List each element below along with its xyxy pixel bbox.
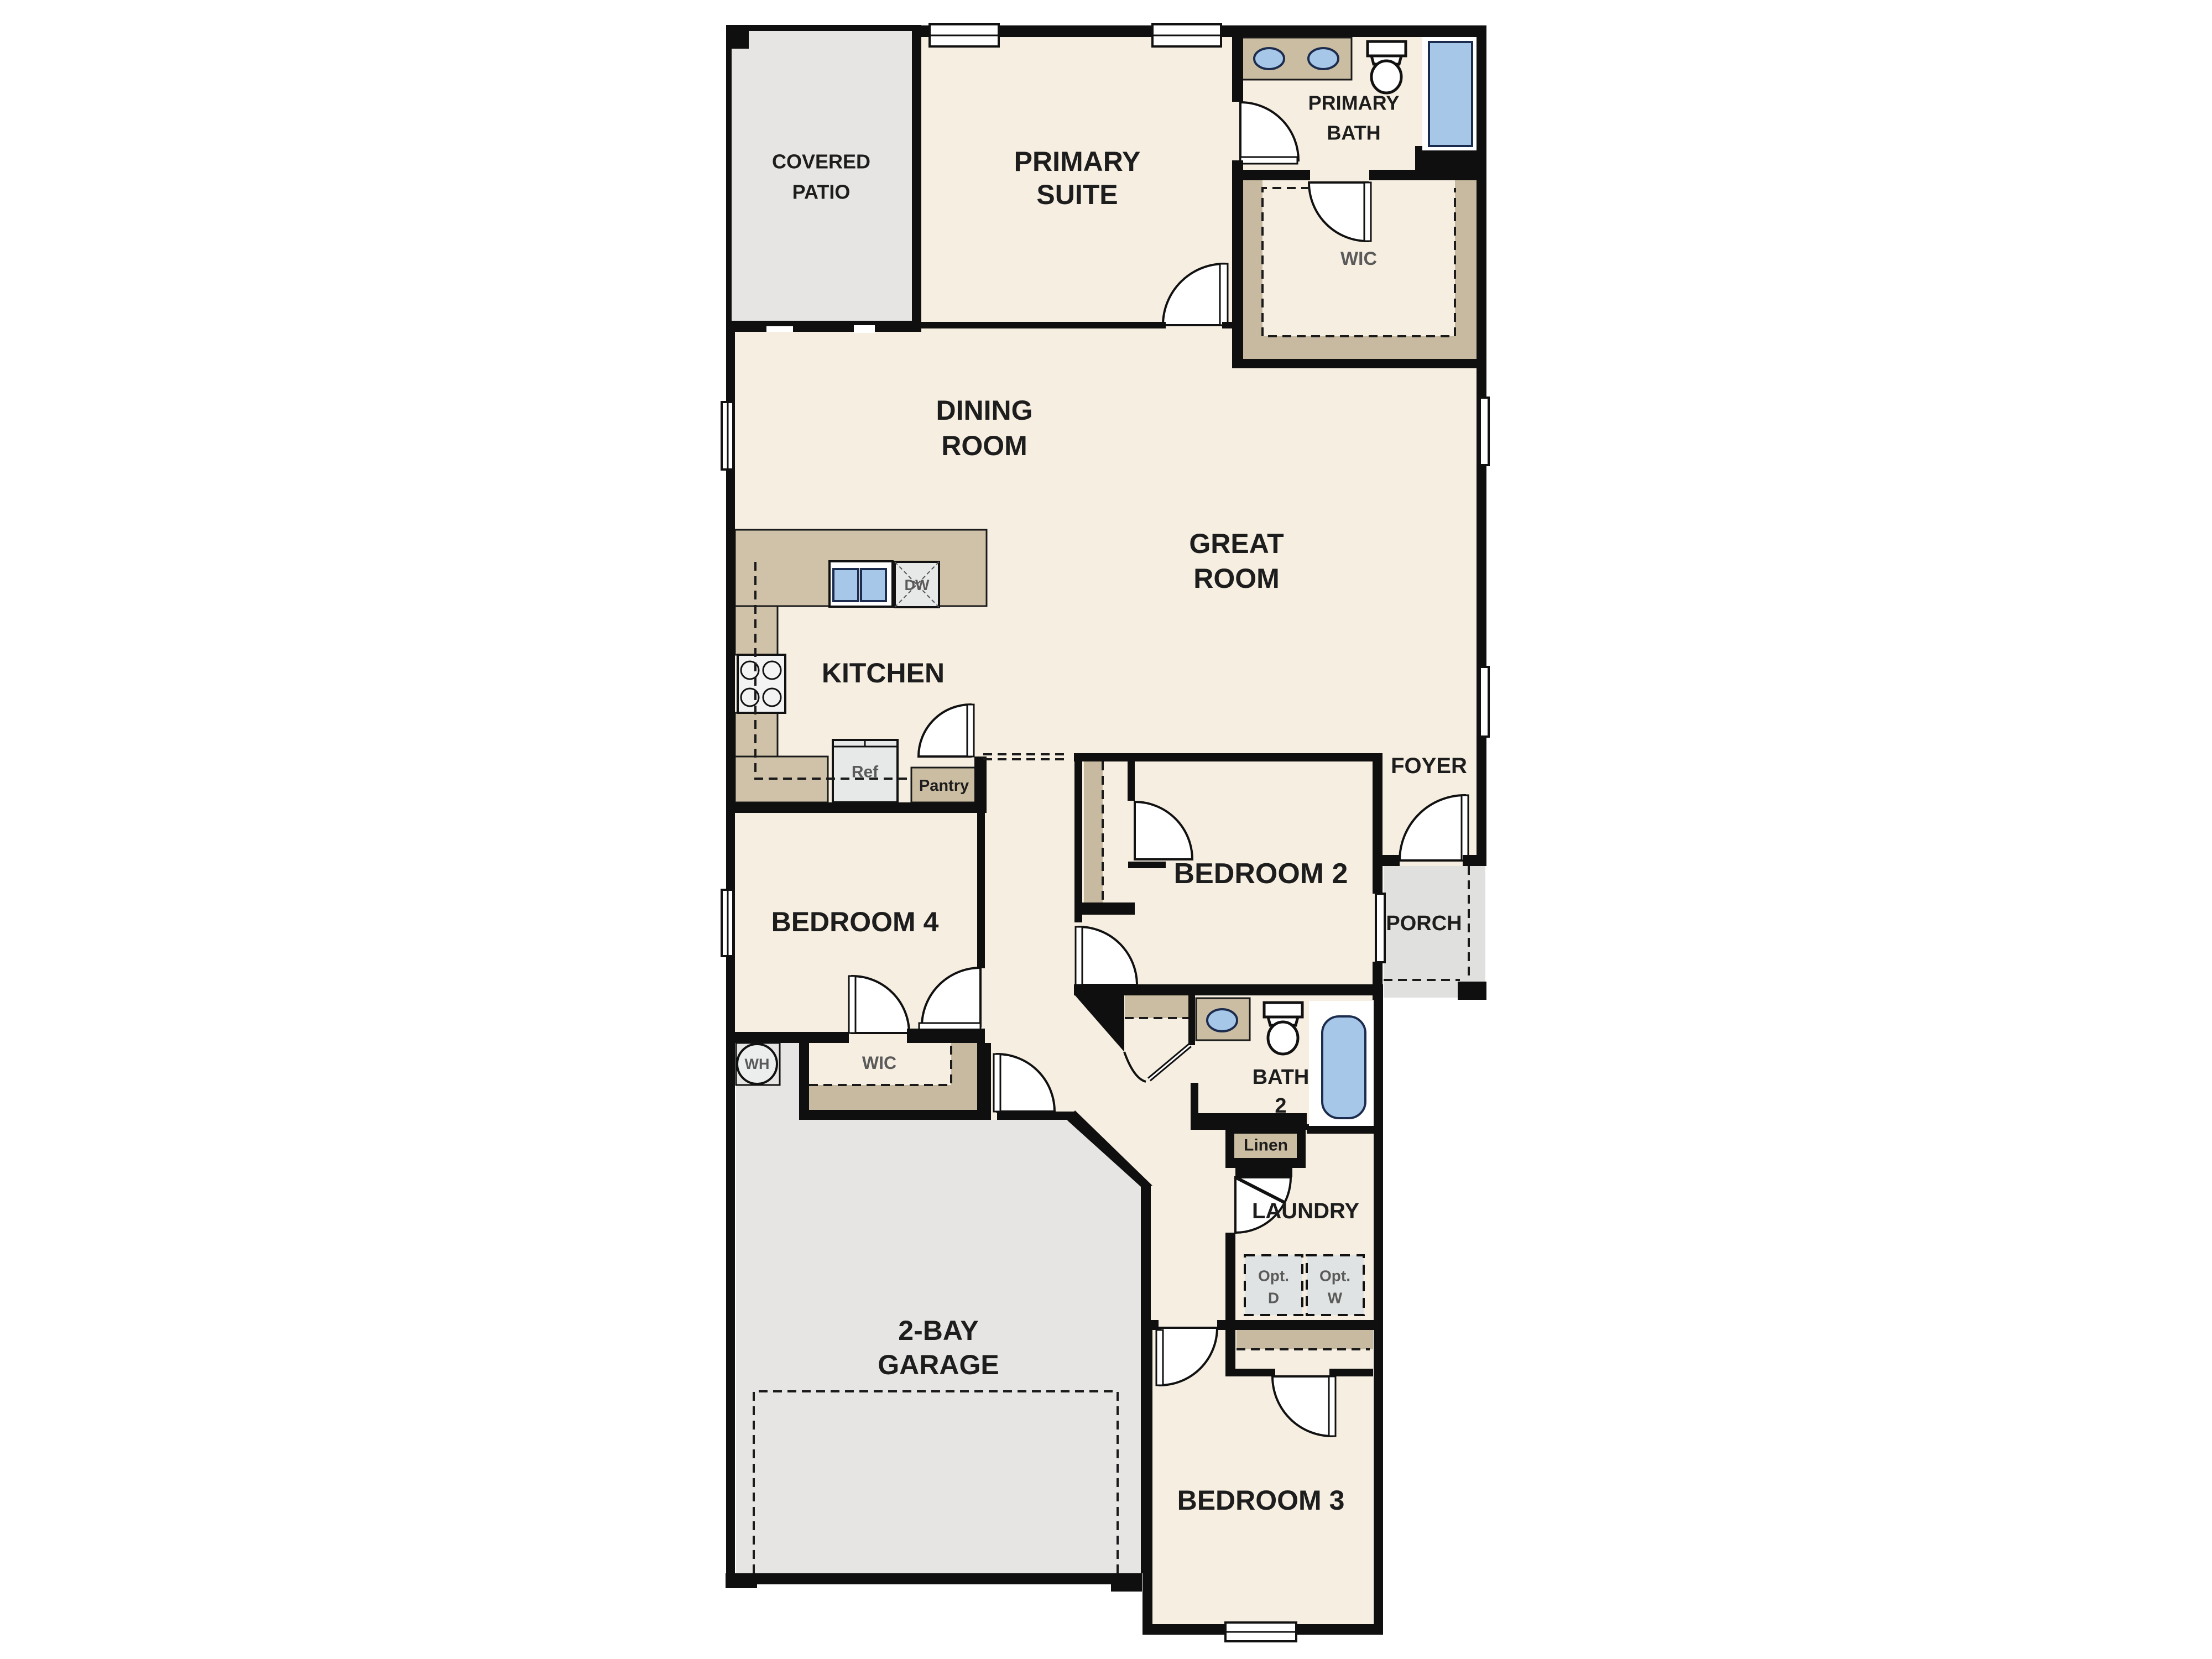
svg-text:Ref: Ref [852,763,879,781]
svg-text:FOYER: FOYER [1391,754,1467,778]
svg-text:WIC: WIC [862,1053,896,1073]
svg-text:2: 2 [1275,1094,1286,1118]
svg-text:KITCHEN: KITCHEN [822,658,945,688]
svg-text:2-BAY: 2-BAY [898,1315,978,1346]
svg-text:PORCH: PORCH [1386,912,1462,935]
svg-text:PRIMARY: PRIMARY [1014,146,1141,177]
svg-text:GREAT: GREAT [1189,528,1284,559]
svg-text:BATH: BATH [1253,1066,1310,1089]
svg-text:GARAGE: GARAGE [878,1349,999,1380]
svg-text:DW: DW [905,577,930,593]
svg-text:LAUNDRY: LAUNDRY [1252,1199,1359,1223]
svg-text:WH: WH [745,1056,770,1072]
svg-text:Opt.: Opt. [1258,1267,1289,1285]
svg-text:SUITE: SUITE [1036,179,1118,210]
svg-text:BEDROOM 2: BEDROOM 2 [1174,858,1348,890]
svg-text:ROOM: ROOM [1193,563,1280,594]
svg-text:W: W [1328,1290,1343,1307]
svg-text:BATH: BATH [1327,122,1380,144]
svg-text:BEDROOM 3: BEDROOM 3 [1177,1485,1345,1516]
svg-text:BEDROOM 4: BEDROOM 4 [771,906,939,937]
svg-text:DINING: DINING [936,395,1033,426]
svg-text:Opt.: Opt. [1319,1267,1350,1285]
svg-text:PATIO: PATIO [792,181,851,204]
svg-text:D: D [1268,1290,1279,1307]
svg-text:WIC: WIC [1340,248,1377,269]
svg-text:COVERED: COVERED [772,150,870,173]
svg-text:ROOM: ROOM [941,430,1027,461]
svg-text:Pantry: Pantry [919,777,969,795]
svg-text:Linen: Linen [1244,1136,1288,1155]
svg-text:PRIMARY: PRIMARY [1308,92,1400,114]
